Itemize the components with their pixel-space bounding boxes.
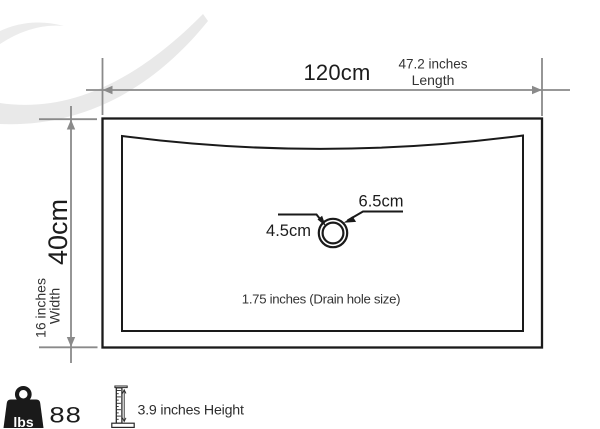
svg-text:16 inches: 16 inches (33, 278, 49, 338)
svg-text:47.2 inches: 47.2 inches (398, 57, 467, 72)
svg-text:6.5cm: 6.5cm (359, 193, 404, 211)
svg-text:lbs: lbs (13, 414, 33, 429)
svg-text:4.5cm: 4.5cm (266, 222, 311, 240)
svg-text:120cm: 120cm (303, 60, 370, 85)
svg-text:Width: Width (48, 288, 64, 324)
svg-text:Length: Length (412, 72, 455, 88)
svg-text:3.9 inches Height: 3.9 inches Height (138, 403, 244, 419)
svg-text:88: 88 (49, 403, 81, 428)
svg-text:40cm: 40cm (43, 199, 73, 265)
svg-text:1.75 inches (Drain hole size): 1.75 inches (Drain hole size) (242, 292, 400, 307)
